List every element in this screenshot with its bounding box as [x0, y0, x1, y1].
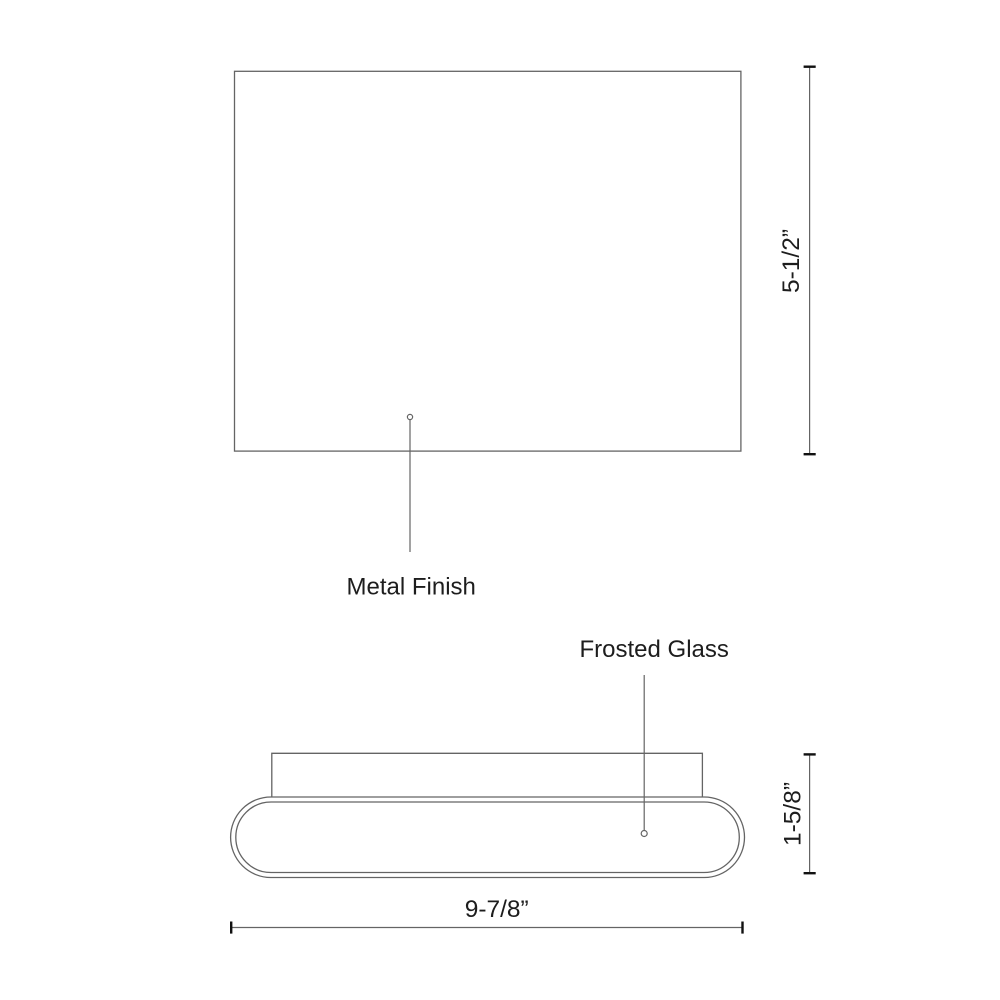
svg-text:5-1/2”: 5-1/2” — [778, 229, 805, 293]
svg-text:Frosted Glass: Frosted Glass — [580, 636, 729, 663]
svg-text:9-7/8”: 9-7/8” — [465, 896, 529, 923]
svg-text:1-5/8”: 1-5/8” — [780, 782, 807, 846]
svg-text:Metal Finish: Metal Finish — [347, 574, 476, 601]
